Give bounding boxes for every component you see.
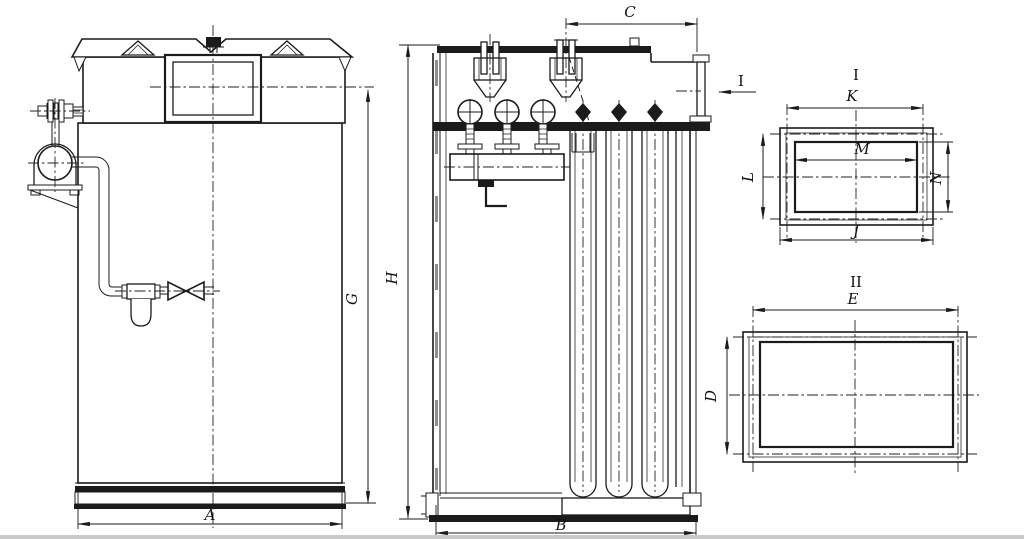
front-body-shell bbox=[78, 123, 342, 483]
dim-label-L: L bbox=[739, 172, 757, 183]
dimension-D: D bbox=[702, 337, 727, 454]
filter-bags bbox=[570, 100, 682, 497]
drawing-svg: A G bbox=[0, 0, 1024, 539]
detail-1-title: I bbox=[853, 66, 859, 84]
front-view: A G bbox=[28, 25, 376, 529]
detail-view-2: II E D bbox=[702, 273, 979, 474]
dim-label-E: E bbox=[847, 290, 859, 308]
dim-label-D: D bbox=[702, 390, 720, 403]
pulse-valves bbox=[458, 99, 559, 155]
dim-label-N: N bbox=[927, 171, 945, 186]
side-top-plate bbox=[437, 46, 651, 53]
dim-label-B: B bbox=[554, 516, 566, 534]
dim-label-G: G bbox=[343, 293, 361, 305]
top-plate-tab bbox=[630, 38, 639, 46]
dimension-G: G bbox=[343, 90, 376, 503]
detail-view-1: I K M L N bbox=[739, 66, 953, 245]
engineering-drawing-canvas: A G bbox=[0, 0, 1024, 539]
dim-label-A: A bbox=[203, 506, 216, 524]
side-view: C H B I bbox=[383, 3, 756, 537]
flange-callout-I: I bbox=[719, 72, 756, 92]
dimension-H: H bbox=[383, 45, 440, 519]
filter-bag-2 bbox=[606, 100, 632, 497]
dim-label-K: K bbox=[845, 87, 858, 105]
filter-bag-partial bbox=[676, 131, 682, 487]
dimension-E: E bbox=[753, 290, 958, 310]
right-foot-bracket bbox=[683, 493, 701, 506]
bag-section-floor bbox=[562, 498, 690, 515]
dim-label-H: H bbox=[383, 271, 401, 286]
dim-label-M: M bbox=[853, 140, 870, 158]
dimension-K: K bbox=[787, 87, 923, 108]
manifold-bracket bbox=[486, 187, 507, 206]
dimension-L: L bbox=[739, 134, 763, 219]
filter-bag-1 bbox=[570, 100, 596, 497]
roof-center-bolt bbox=[206, 37, 221, 47]
detail-2-title: II bbox=[850, 273, 862, 291]
manifold-drain bbox=[478, 180, 494, 187]
dim-label-C: C bbox=[624, 3, 636, 21]
filter-bowl bbox=[131, 299, 151, 326]
callout-label-I: I bbox=[738, 72, 744, 90]
filter-bag-3 bbox=[642, 100, 668, 497]
outlet-flange bbox=[676, 55, 711, 122]
scan-edge-artifact bbox=[0, 535, 1024, 539]
air-manifold bbox=[444, 154, 572, 206]
